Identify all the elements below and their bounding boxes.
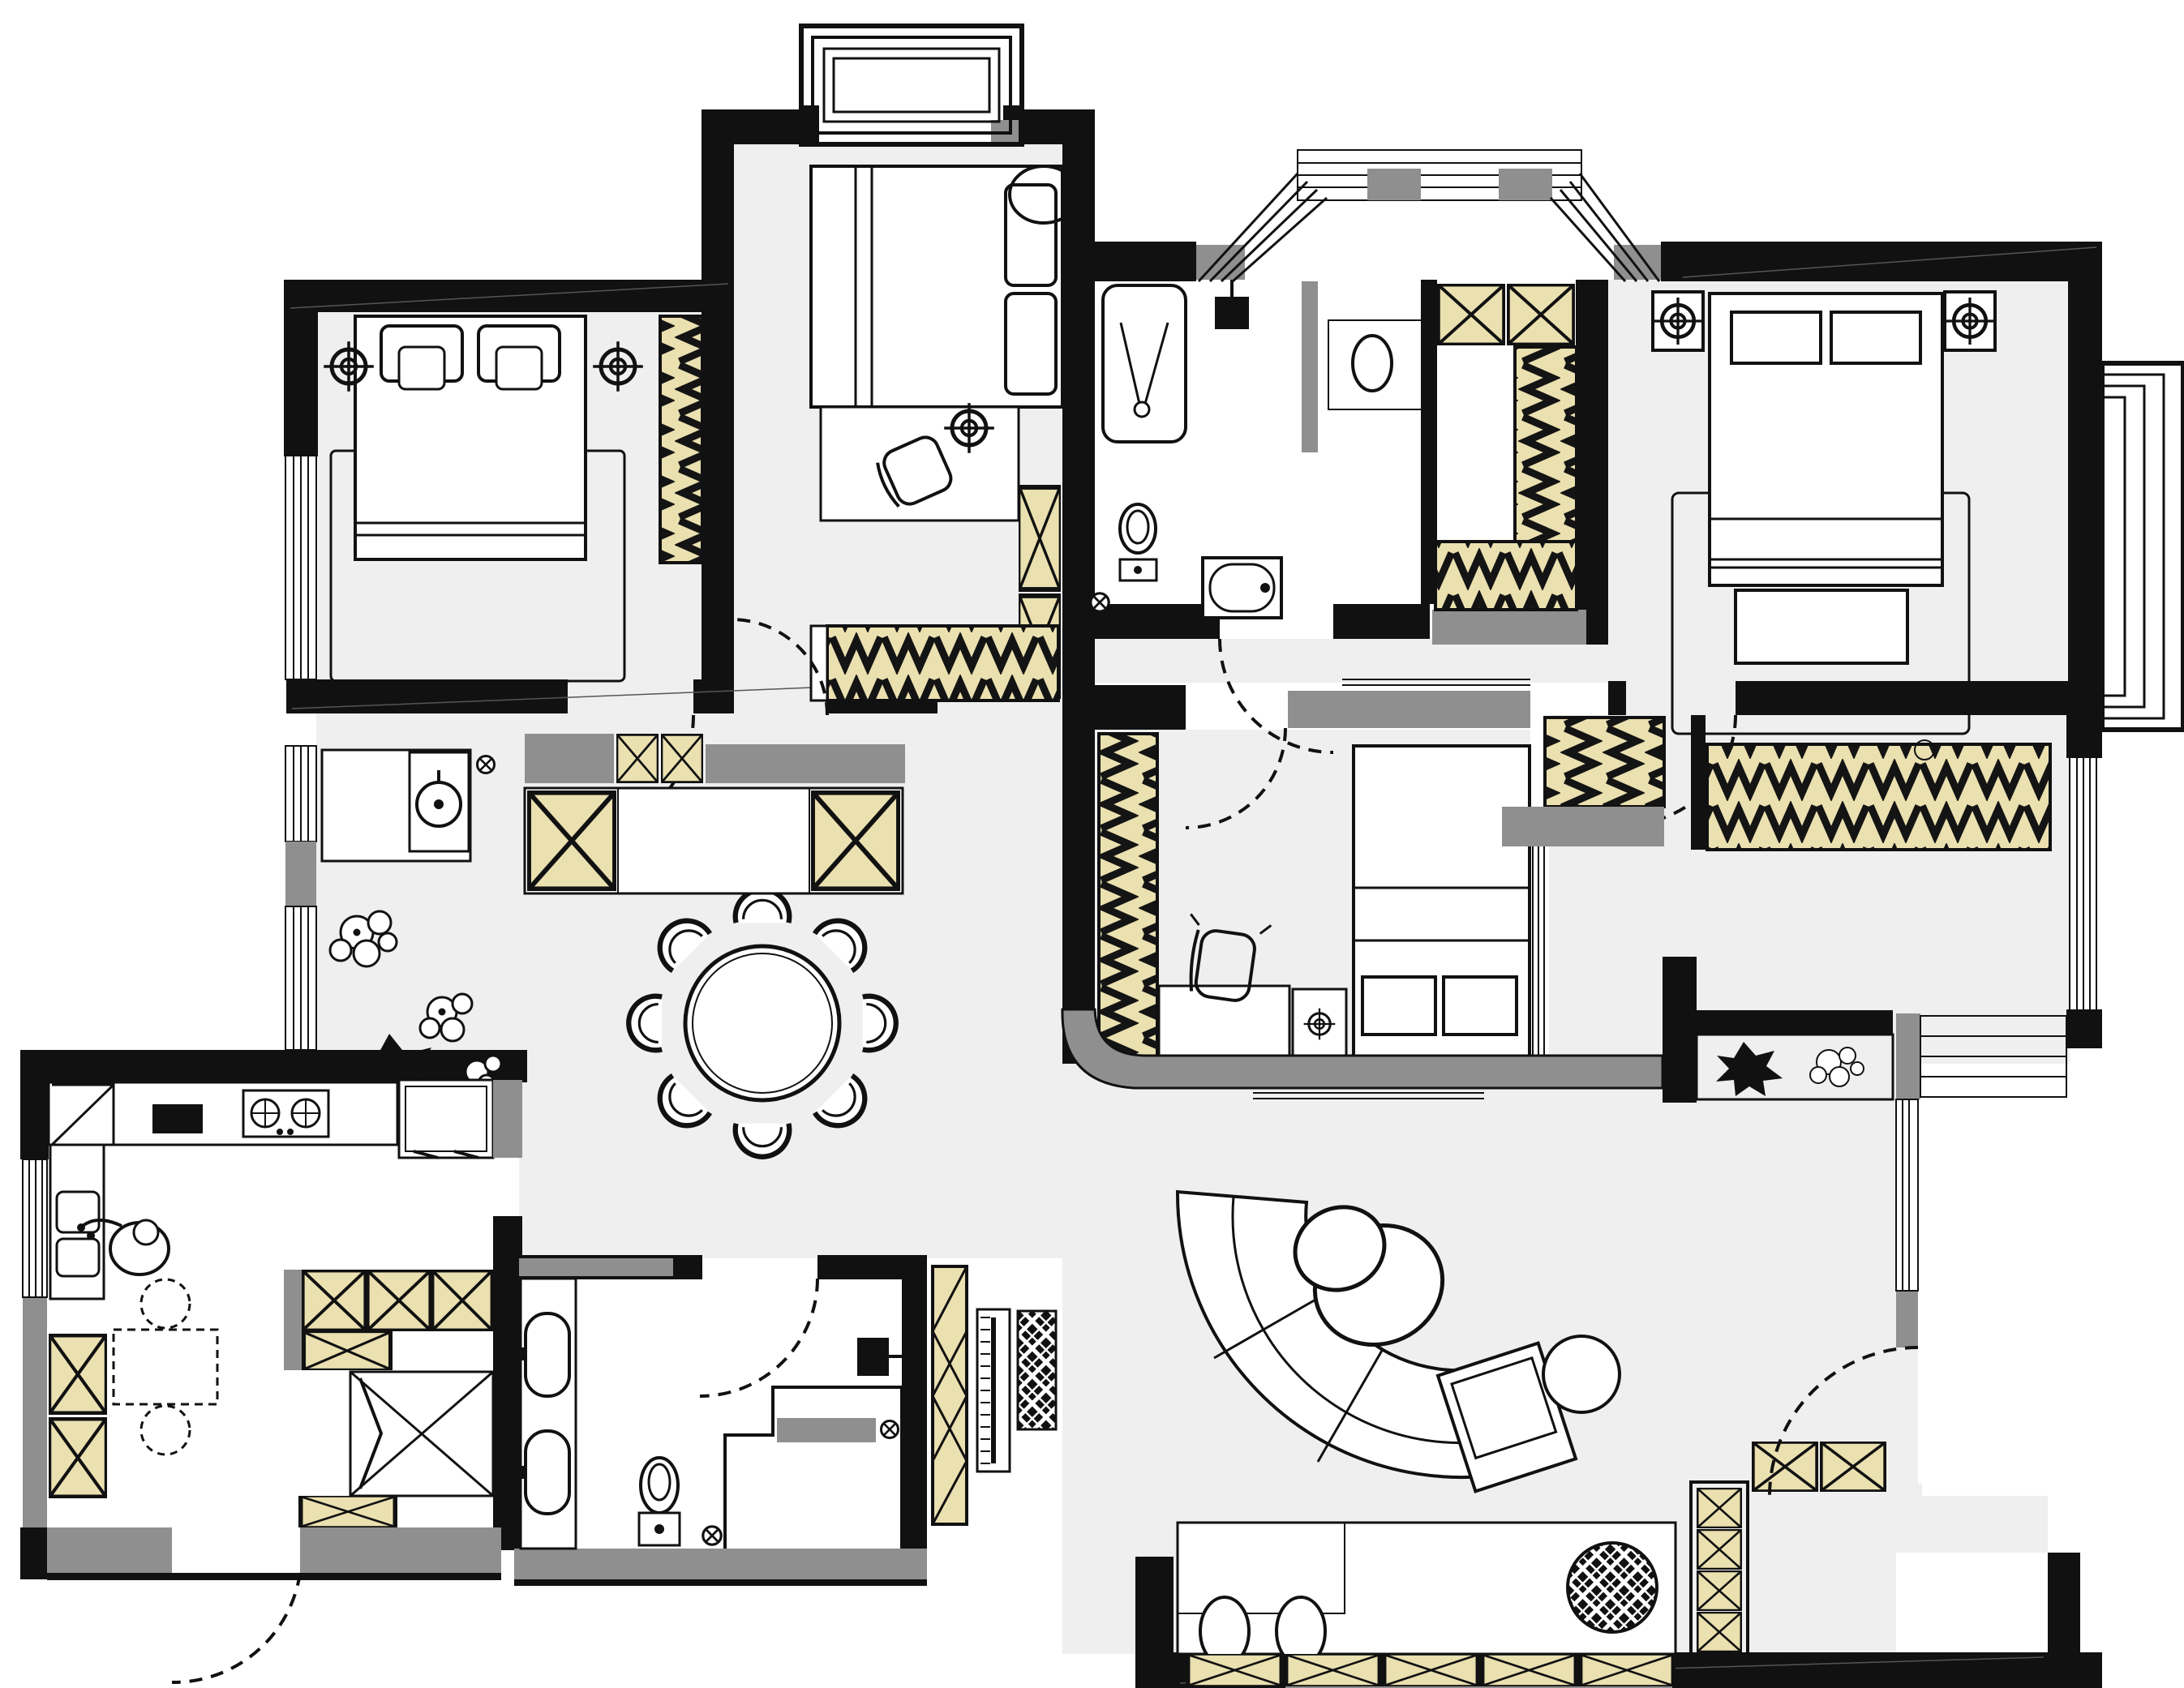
floor-entry-nook — [1896, 1496, 2048, 1553]
framed-downlight — [1945, 292, 1995, 350]
bed — [811, 166, 1062, 407]
nightstand — [1293, 989, 1346, 1059]
desk — [1159, 986, 1289, 1062]
basin — [526, 1431, 569, 1514]
cabinet-xbox — [1697, 1530, 1741, 1569]
window-right-upper — [2070, 754, 2096, 1013]
cabinet-xbox — [662, 735, 702, 782]
cabinet-xbox — [1697, 1489, 1741, 1527]
bottom-cabinet-row — [1187, 1655, 1673, 1686]
cabinet-xbox — [49, 1419, 105, 1497]
tv-panel — [977, 1309, 1010, 1472]
cabinet-xbox — [1580, 1655, 1673, 1686]
glazing-bedroom-right — [1533, 815, 1544, 1058]
bathtub — [1203, 558, 1281, 618]
wardrobe-hatch — [1545, 718, 1664, 807]
dining-chair — [863, 996, 896, 1051]
drying-closet — [350, 1372, 493, 1496]
closet-xbox — [1439, 285, 1504, 345]
cabinet-xbox — [1753, 1442, 1817, 1491]
dining-table — [685, 946, 839, 1100]
cushion — [496, 347, 542, 389]
wardrobe-hatch — [660, 316, 702, 563]
rattan-pouf — [1568, 1543, 1657, 1632]
hanging-rail-hatch — [1435, 542, 1577, 610]
cabinet-xbox — [368, 1271, 431, 1330]
foot-bench — [1736, 590, 1907, 663]
master-bay-window-right — [2102, 363, 2183, 730]
double-bed — [1710, 293, 1942, 585]
shoe-cabinet — [933, 1266, 967, 1524]
floor-entry-gap — [1890, 1347, 1922, 1496]
floor-drain-icon — [882, 1421, 899, 1438]
floor-drain-icon — [1091, 593, 1109, 611]
window-entry-inner — [1896, 1099, 1918, 1291]
media-console — [1178, 1523, 1676, 1665]
pillow — [1362, 977, 1435, 1035]
glass-partition — [1302, 281, 1318, 452]
cabinet-xbox — [617, 735, 658, 782]
desk — [821, 407, 1019, 521]
pillow — [1831, 312, 1920, 363]
pillow — [1006, 185, 1056, 285]
entry-shoe-cabinet — [1691, 1482, 1748, 1656]
floor-drain-icon — [703, 1527, 721, 1544]
cabinet-xbox — [1019, 487, 1060, 590]
toilet — [639, 1458, 680, 1545]
cabinet-xbox — [49, 1335, 105, 1413]
bed — [1354, 746, 1530, 1059]
kitchen-counter — [49, 1082, 397, 1145]
cabinet-xbox — [300, 1497, 395, 1527]
stove — [243, 1090, 328, 1137]
floor-plan-svg — [0, 0, 2184, 1688]
cutting-board — [152, 1104, 203, 1133]
tv-wall — [933, 1266, 1056, 1524]
dining-chair — [629, 996, 662, 1051]
double-vanity — [517, 1279, 576, 1549]
cabinet-xbox — [1482, 1655, 1576, 1686]
dining-chair — [736, 1124, 790, 1157]
door-swing — [172, 1573, 300, 1682]
side-table — [1543, 1336, 1620, 1412]
tv-rug — [1018, 1311, 1056, 1429]
cabinet-xbox — [1697, 1571, 1741, 1610]
pillow — [1006, 293, 1056, 394]
cabinet-xbox — [303, 1332, 391, 1369]
cabinet-xbox — [1187, 1655, 1281, 1686]
floor-plan-page — [0, 0, 2184, 1688]
window-hall-left — [285, 746, 316, 1050]
cabinet-xbox — [1285, 1655, 1379, 1686]
wardrobe-hatch — [1099, 734, 1157, 1060]
window-bedroom-left — [285, 454, 316, 679]
cushion — [399, 347, 444, 389]
basin — [526, 1313, 569, 1396]
wardrobe-hatch — [827, 626, 1058, 700]
washing-machine — [410, 752, 469, 851]
framed-downlight — [1653, 292, 1703, 350]
floor-corridor — [1095, 639, 1608, 683]
base-cabinet-row — [525, 788, 903, 893]
pillow — [1444, 977, 1517, 1035]
cabinet-xbox — [813, 792, 899, 889]
floor-drain-icon — [478, 756, 495, 773]
closet-xbox — [1508, 285, 1574, 345]
refrigerator — [399, 1080, 493, 1158]
double-bed — [355, 316, 586, 559]
cabinet-xbox — [529, 792, 615, 889]
cabinet-xbox — [1821, 1442, 1886, 1491]
cabinet-xbox — [1384, 1655, 1478, 1686]
shower-bench — [777, 1418, 876, 1442]
bathroom-bay-window — [1199, 150, 1659, 281]
wardrobe-hatch — [1707, 744, 2050, 850]
cabinet-xbox — [1697, 1613, 1741, 1652]
toilet — [1120, 504, 1156, 581]
shower-head-icon — [1215, 297, 1249, 329]
cabinet-xbox — [303, 1271, 366, 1330]
pillow — [1731, 312, 1821, 363]
cabinet-xbox — [433, 1271, 492, 1330]
floor-balcony-right — [1918, 1099, 2068, 1484]
washbasin — [1353, 336, 1392, 391]
window-kitchen-left — [23, 1159, 47, 1297]
